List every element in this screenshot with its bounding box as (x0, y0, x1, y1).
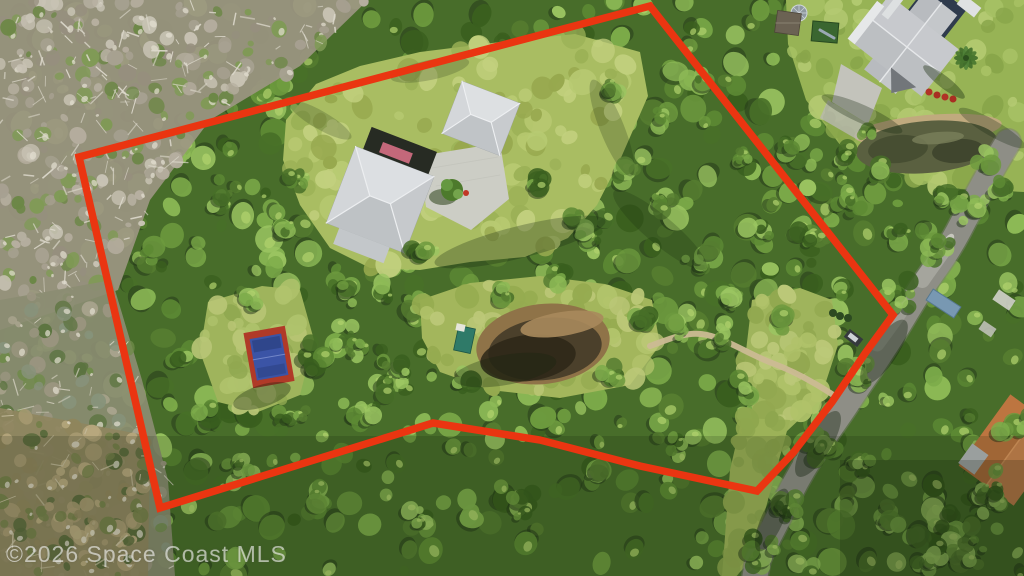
courtyard-tree-lit (441, 179, 453, 191)
mls-watermark: ©2026 Space Coast MLS (6, 541, 287, 568)
red-shrub-3 (942, 94, 949, 101)
aerial-photo: ©2026 Space Coast MLS (0, 0, 1024, 576)
roadside-bushes (829, 309, 837, 317)
red-shrub-4 (950, 96, 957, 103)
roadside-bushes-2 (836, 312, 844, 320)
roadside-bushes-3 (844, 314, 852, 322)
canopy-shade-band (840, 460, 1024, 576)
courtyard-tree-lit2 (453, 189, 463, 199)
palm-crown (963, 55, 969, 61)
red-shrub-2 (934, 92, 941, 99)
red-shrub-1 (926, 89, 933, 96)
aerial-scene (0, 0, 1024, 576)
red-item-courtyard (463, 190, 469, 196)
